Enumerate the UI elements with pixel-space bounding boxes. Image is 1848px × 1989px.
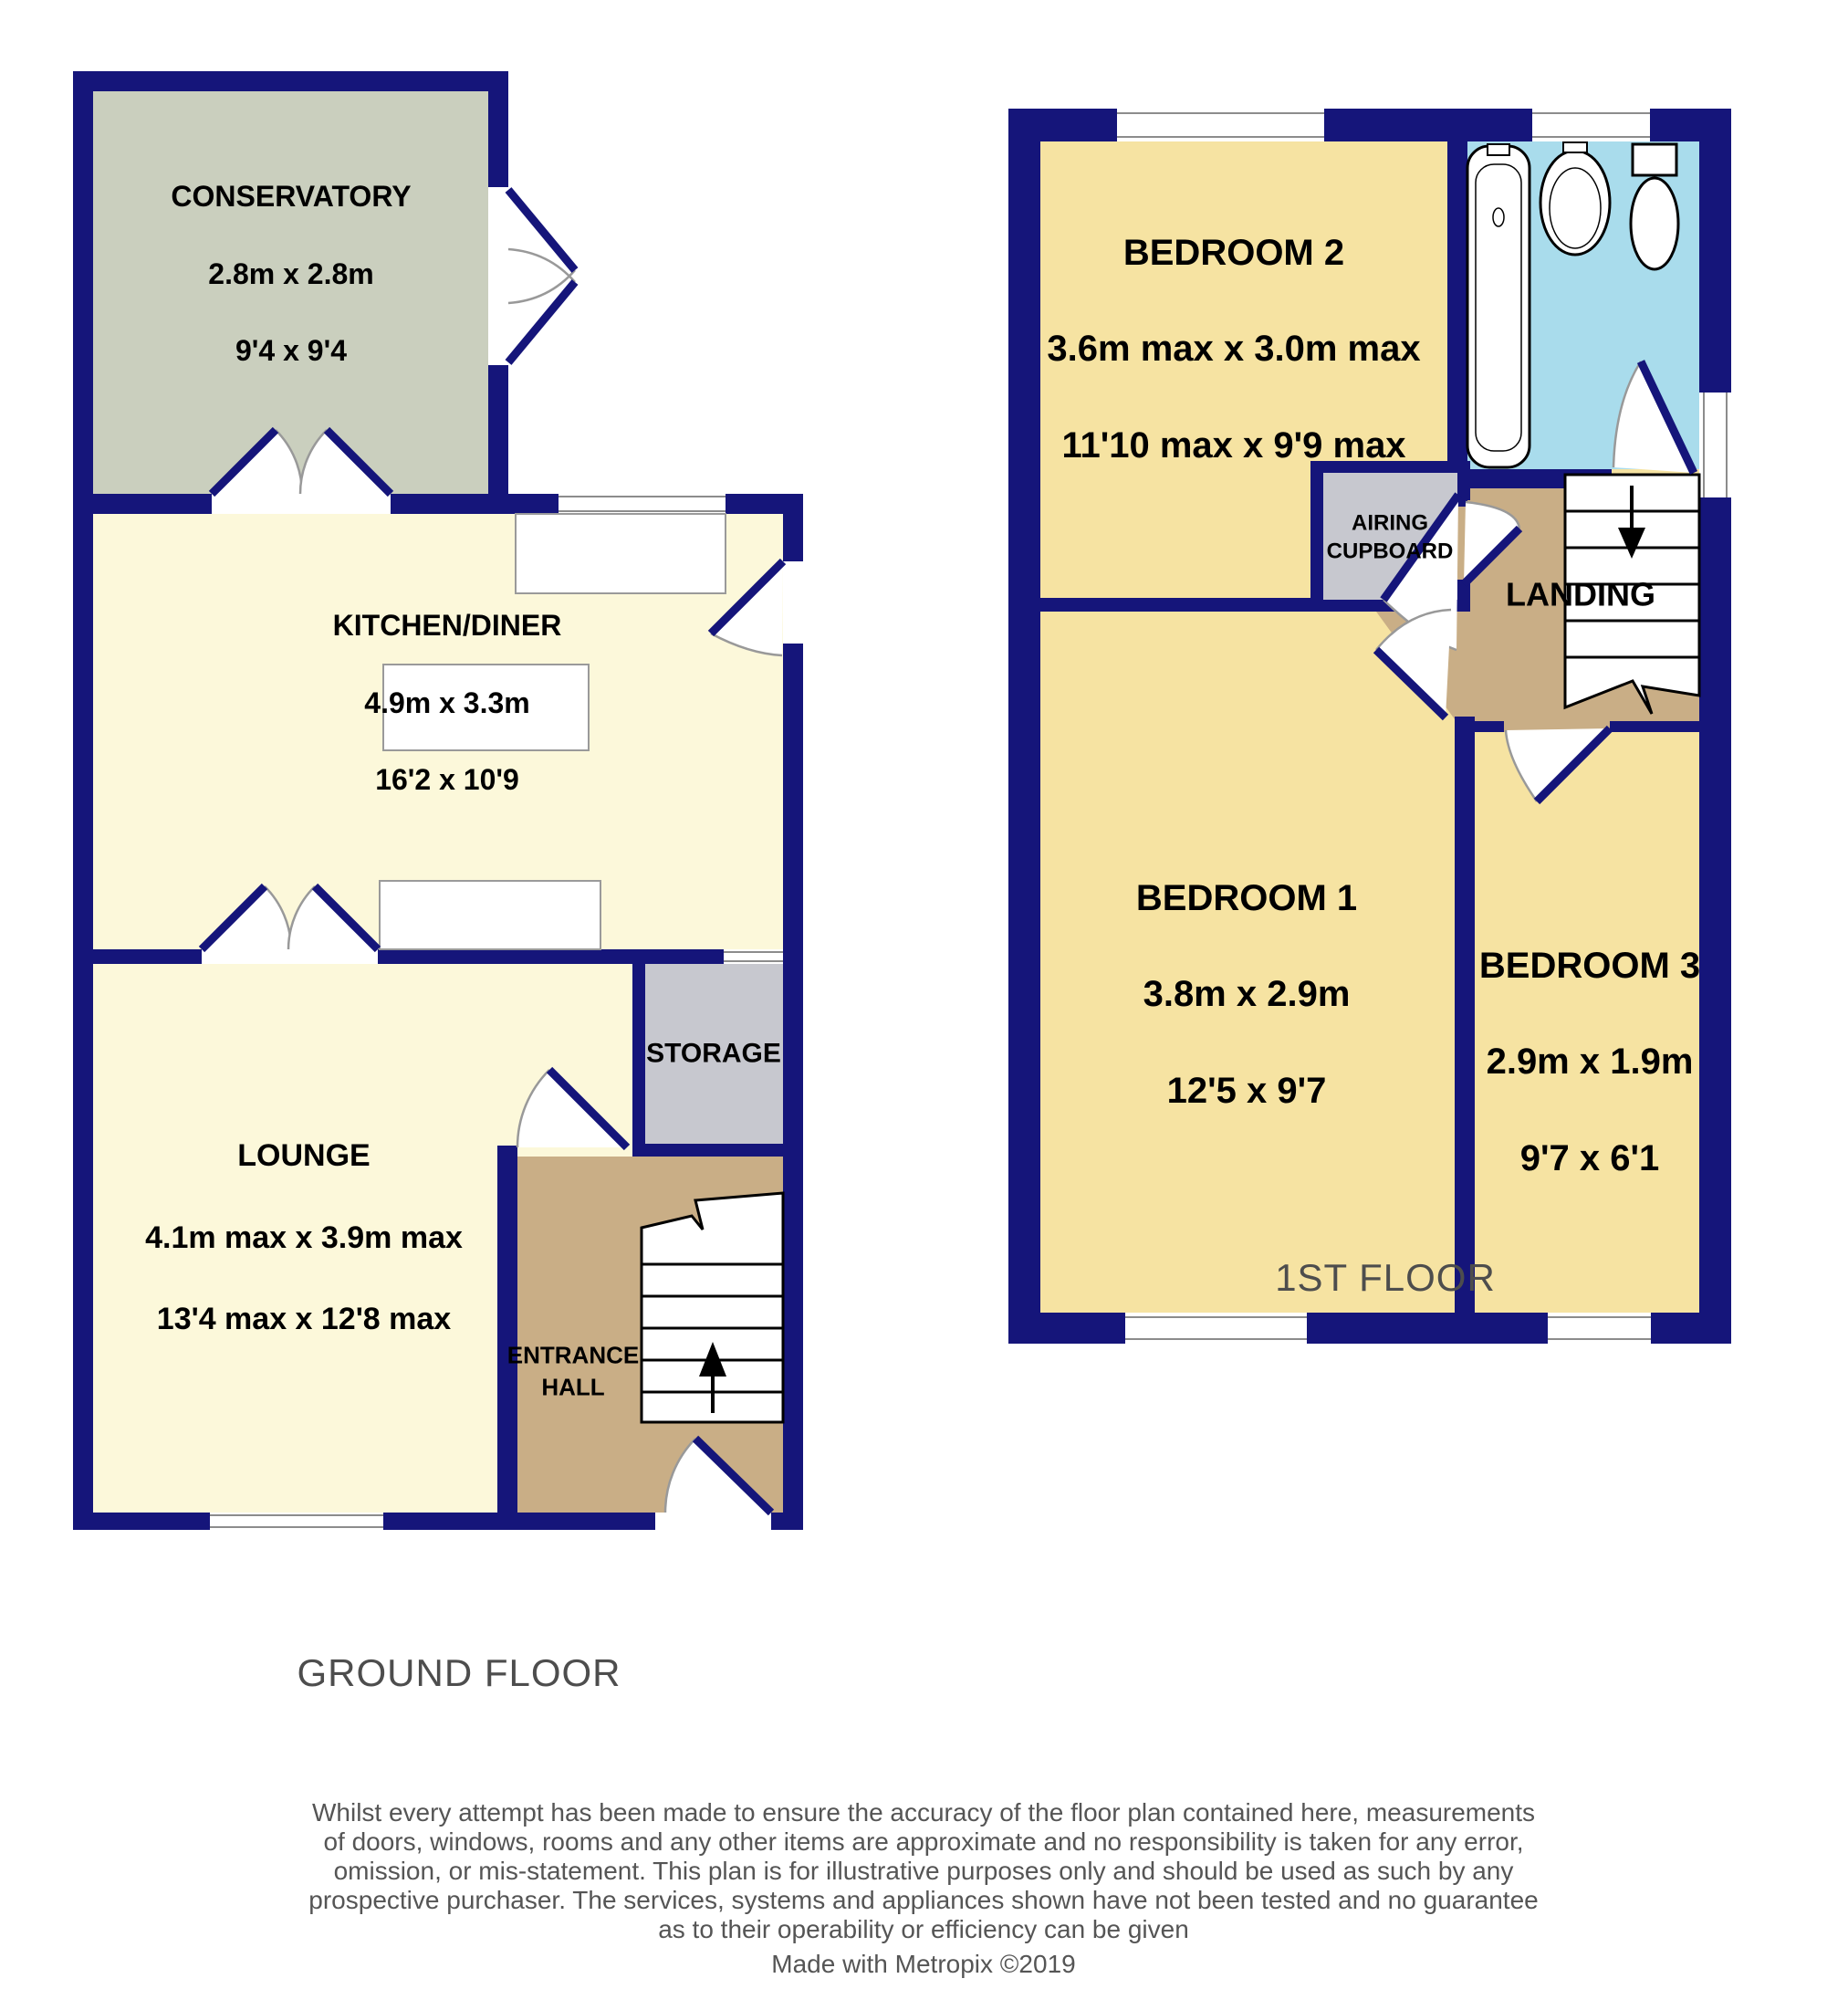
- first-floor-plan: [1008, 109, 1731, 1344]
- staircase-down: [1565, 475, 1699, 714]
- toilet: [1631, 144, 1678, 269]
- conservatory-floor: [93, 91, 488, 494]
- ground-floor-plan: [73, 71, 803, 1530]
- floorplan-page: CONSERVATORY 2.8m x 2.8m 9'4 x 9'4 KITCH…: [0, 0, 1848, 1989]
- storage-floor: [645, 964, 783, 1144]
- bathtub: [1467, 144, 1530, 467]
- metropix-credit: Made with Metropix ©2019: [771, 1950, 1075, 1979]
- conservatory-french-doors: [508, 190, 575, 362]
- disclaimer-text: Whilst every attempt has been made to en…: [239, 1798, 1608, 1944]
- staircase-up: [642, 1193, 783, 1422]
- ground-floor-title: GROUND FLOOR: [297, 1651, 621, 1695]
- first-floor-title: 1ST FLOOR: [1275, 1256, 1496, 1300]
- floorplan-drawing: [0, 0, 1848, 1989]
